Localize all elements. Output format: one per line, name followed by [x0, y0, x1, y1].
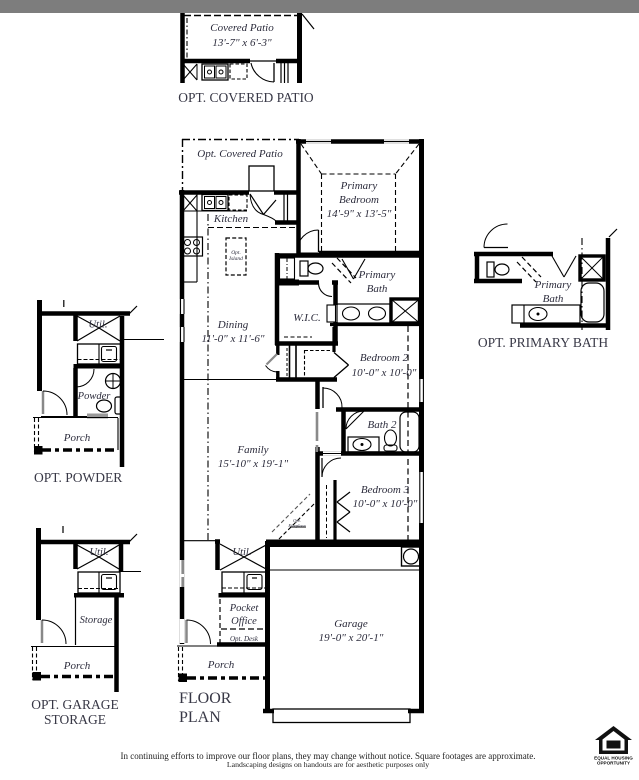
svg-text:OPT. GARAGE: OPT. GARAGE [31, 697, 119, 712]
svg-text:Porch: Porch [63, 432, 91, 444]
svg-text:10'-0" x 10'-0": 10'-0" x 10'-0" [352, 367, 417, 379]
svg-text:OPT. POWDER: OPT. POWDER [34, 470, 122, 485]
svg-text:PLAN: PLAN [179, 709, 221, 726]
svg-text:Bath 2: Bath 2 [367, 419, 397, 431]
svg-text:10'-0" x 10'-0": 10'-0" x 10'-0" [353, 498, 418, 510]
svg-text:Office: Office [231, 616, 257, 627]
svg-text:Util.: Util. [90, 547, 109, 558]
svg-text:Opt. Desk: Opt. Desk [230, 635, 259, 643]
svg-text:15'-10" x 19'-1": 15'-10" x 19'-1" [218, 458, 289, 470]
svg-text:Bedroom 2: Bedroom 2 [360, 352, 409, 364]
svg-text:13'-7" x 6'-3": 13'-7" x 6'-3" [212, 37, 272, 49]
svg-text:Porch: Porch [207, 659, 235, 671]
svg-text:Powder: Powder [77, 391, 112, 402]
svg-text:Primary: Primary [534, 279, 572, 291]
svg-text:19'-0" x 20'-1": 19'-0" x 20'-1" [319, 632, 384, 644]
svg-text:Fireplace: Fireplace [287, 523, 305, 528]
svg-text:Garage: Garage [334, 618, 368, 630]
svg-text:Porch: Porch [63, 660, 91, 672]
svg-text:Primary: Primary [340, 180, 378, 192]
svg-text:Covered Patio: Covered Patio [210, 22, 274, 34]
svg-text:OPT. COVERED PATIO: OPT. COVERED PATIO [178, 90, 314, 105]
svg-text:Family: Family [236, 444, 268, 456]
svg-text:OPT. PRIMARY BATH: OPT. PRIMARY BATH [478, 335, 608, 350]
svg-text:Opt. Covered Patio: Opt. Covered Patio [197, 148, 283, 160]
svg-text:Bedroom 3: Bedroom 3 [361, 484, 410, 496]
svg-text:Util.: Util. [89, 320, 108, 331]
svg-text:Pocket: Pocket [229, 603, 260, 614]
svg-text:Util.: Util. [233, 547, 252, 558]
svg-text:OPPORTUNITY: OPPORTUNITY [597, 761, 630, 766]
svg-text:Landscaping designs on handout: Landscaping designs on handouts are for … [227, 760, 429, 769]
svg-text:Storage: Storage [80, 615, 113, 626]
svg-text:14'-9" x 13'-5": 14'-9" x 13'-5" [327, 208, 392, 220]
svg-text:STORAGE: STORAGE [44, 712, 106, 727]
svg-text:W.I.C.: W.I.C. [293, 312, 320, 324]
svg-text:Island: Island [228, 256, 243, 262]
svg-text:11'-0" x 11'-6": 11'-0" x 11'-6" [201, 333, 264, 345]
svg-text:Primary: Primary [358, 269, 396, 281]
svg-text:Bedroom: Bedroom [339, 194, 379, 206]
svg-text:FLOOR: FLOOR [179, 690, 232, 707]
svg-text:Dining: Dining [217, 319, 249, 331]
svg-text:Bath: Bath [543, 293, 564, 305]
svg-text:Kitchen: Kitchen [213, 213, 249, 225]
svg-text:Bath: Bath [367, 283, 388, 295]
